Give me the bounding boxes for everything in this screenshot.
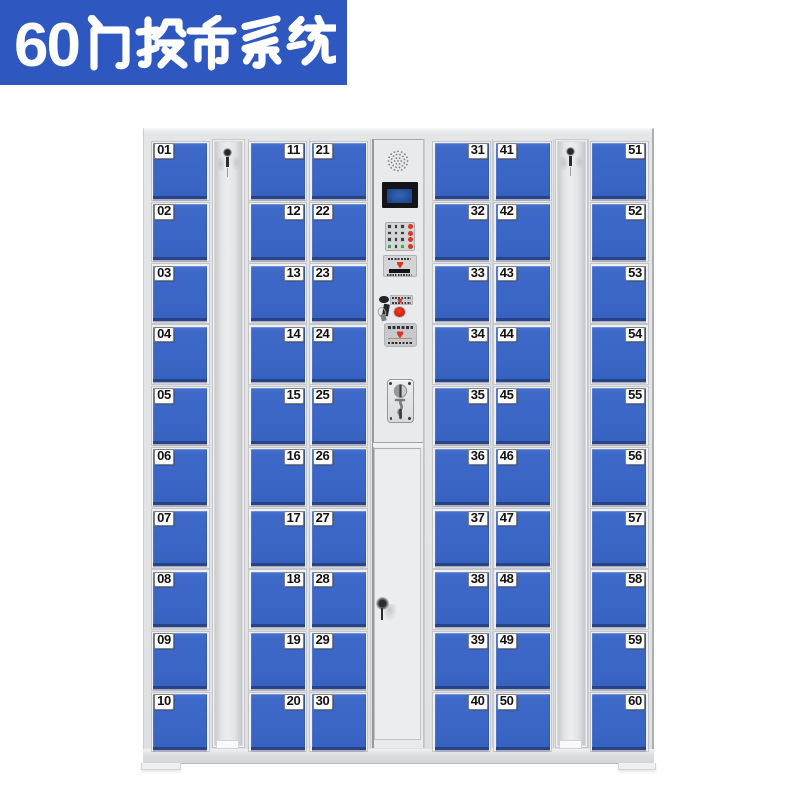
svg-text:60: 60: [16, 15, 79, 71]
